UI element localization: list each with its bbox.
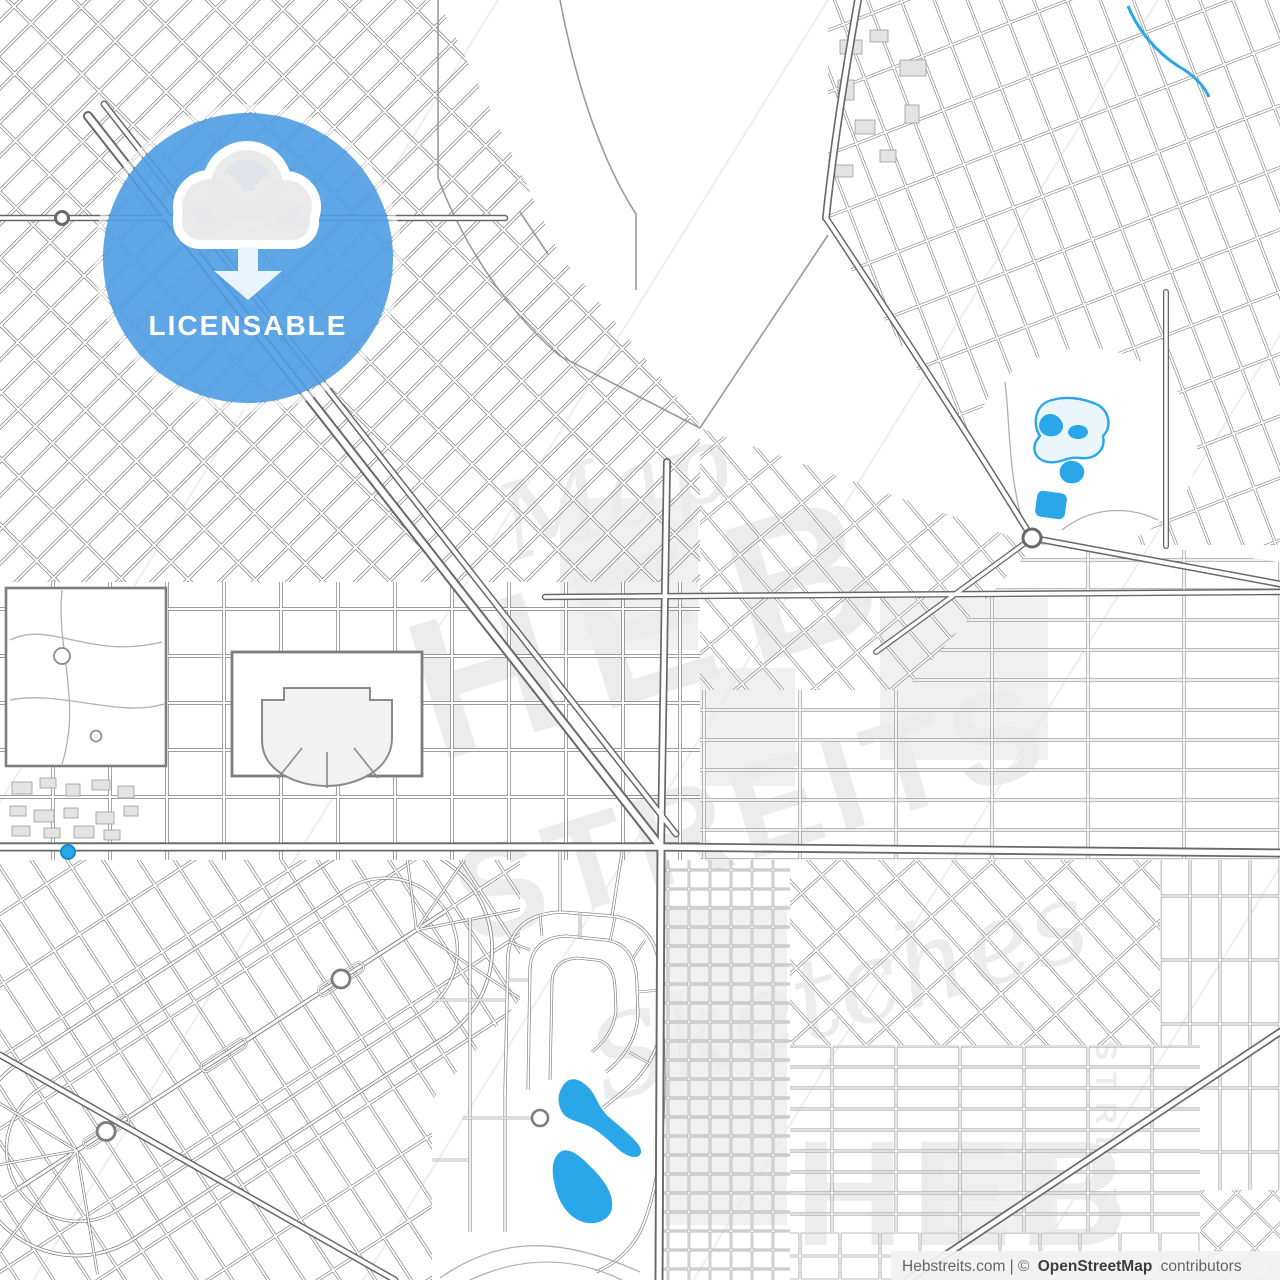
building-footprint	[900, 60, 926, 76]
building-footprint	[880, 150, 896, 162]
building-footprint	[124, 806, 138, 816]
arrow-shaft	[238, 247, 258, 271]
roundabout	[56, 212, 69, 225]
building-footprint	[12, 826, 30, 836]
map-preview-page: Map HEB STREITS Sketches HEB STREITS	[0, 0, 1280, 1280]
small-pond-west	[61, 845, 75, 859]
attribution-bar: Hebstreits.com | © OpenStreetMap contrib…	[891, 1251, 1280, 1280]
building-footprint	[92, 780, 110, 790]
building-footprint	[12, 782, 32, 794]
building-footprint	[118, 786, 134, 798]
building-footprint	[74, 826, 94, 838]
building-footprint	[905, 105, 919, 123]
building-footprint	[34, 810, 54, 822]
lake-south	[553, 1150, 613, 1223]
building-footprint	[64, 808, 78, 818]
major-road-fill	[659, 847, 661, 1280]
west-park	[6, 588, 166, 766]
building-footprint	[855, 120, 875, 134]
attribution-brand-link[interactable]: OpenStreetMap	[1038, 1258, 1153, 1275]
building-footprint	[44, 828, 60, 838]
building-footprint	[40, 778, 56, 788]
cloud-base-fill	[182, 200, 310, 240]
building-footprint	[66, 784, 80, 796]
park-pond-square	[1034, 490, 1067, 520]
attribution-prefix: Hebstreits.com | ©	[902, 1258, 1030, 1275]
park-pond-patch-2	[1068, 425, 1088, 439]
attribution-suffix: contributors	[1161, 1258, 1242, 1275]
major-road-fill	[826, 0, 858, 218]
park-fountain-small	[91, 731, 102, 742]
building-footprint	[96, 812, 114, 824]
badge-label: LICENSABLE	[149, 310, 348, 341]
building-footprint	[870, 30, 888, 42]
cul-de-sac	[532, 1110, 548, 1126]
field-boundary-lines	[438, 0, 828, 428]
building-footprint	[10, 806, 26, 816]
attribution-text: Hebstreits.com | © OpenStreetMap contrib…	[902, 1258, 1242, 1275]
map-canvas: Map HEB STREITS Sketches HEB STREITS	[0, 0, 1280, 1280]
roundabout	[1023, 529, 1041, 547]
park-fountain	[54, 648, 70, 664]
stadium-roundabout	[329, 967, 354, 992]
major-road-fill	[0, 1055, 395, 1280]
building-footprint	[104, 830, 120, 840]
licensable-badge[interactable]: LICENSABLE	[98, 108, 398, 408]
building-footprint	[835, 165, 853, 177]
